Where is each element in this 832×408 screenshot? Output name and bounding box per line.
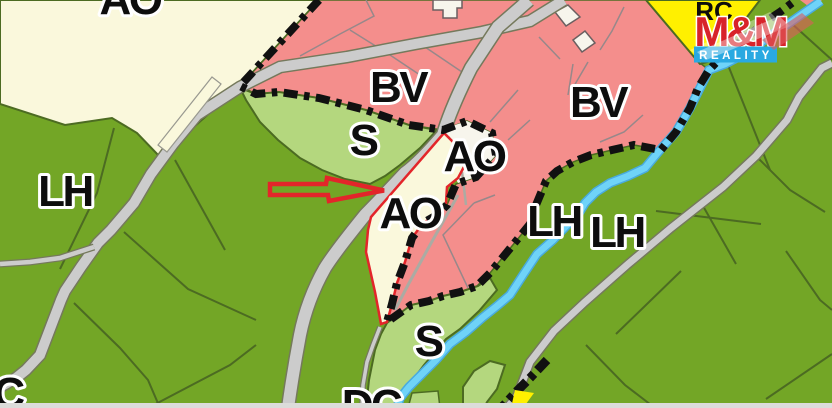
svg-text:LH: LH xyxy=(590,208,644,257)
svg-text:LH: LH xyxy=(38,167,92,216)
svg-text:S: S xyxy=(415,317,443,366)
svg-text:BV: BV xyxy=(570,78,629,127)
svg-text:S: S xyxy=(350,116,378,165)
svg-text:C: C xyxy=(0,369,24,408)
svg-text:LH: LH xyxy=(527,197,581,246)
svg-text:AO: AO xyxy=(380,189,442,238)
svg-text:AO: AO xyxy=(100,0,162,24)
svg-text:BV: BV xyxy=(370,63,429,112)
svg-text:AO: AO xyxy=(444,132,506,181)
